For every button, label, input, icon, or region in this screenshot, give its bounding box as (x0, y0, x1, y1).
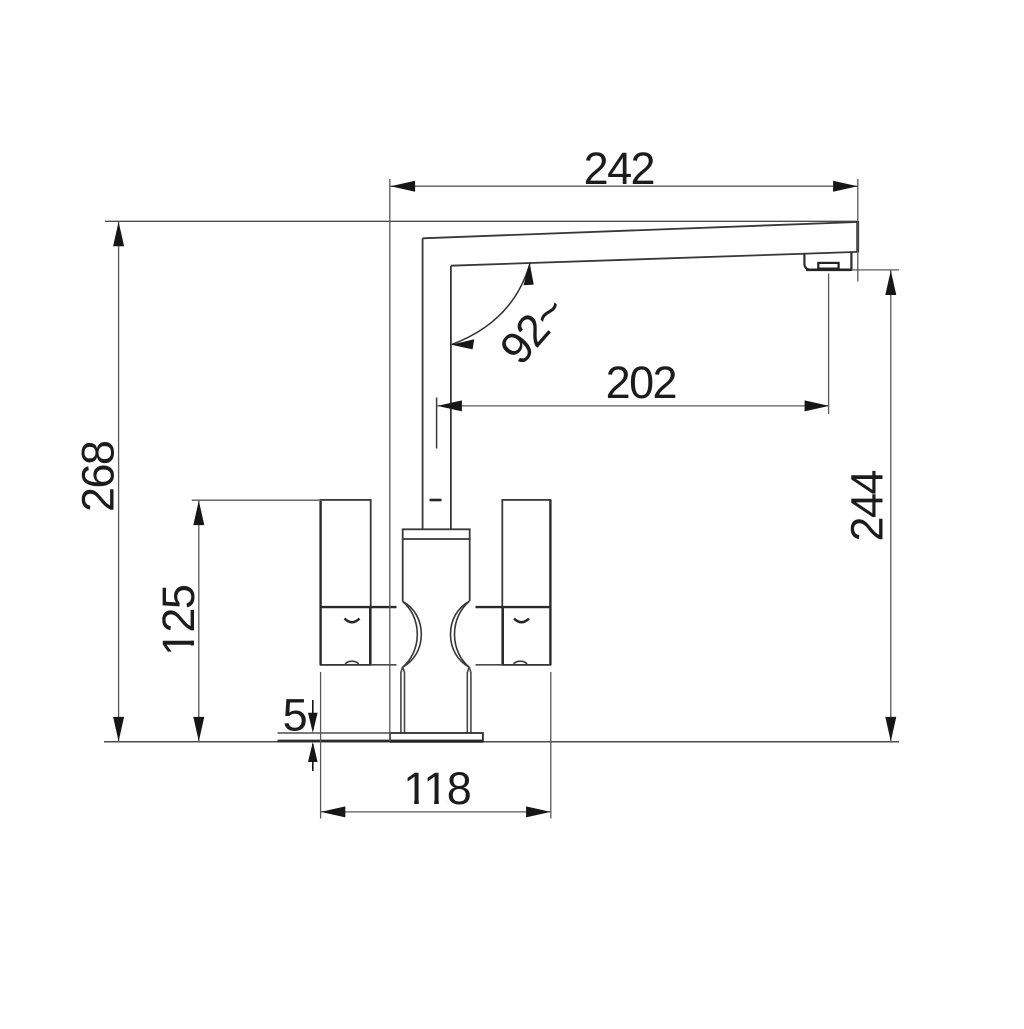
svg-text:118: 118 (403, 763, 471, 814)
svg-text:244: 244 (842, 471, 893, 542)
svg-text:268: 268 (72, 441, 123, 512)
svg-text:125: 125 (153, 585, 204, 656)
svg-text:5: 5 (283, 689, 307, 740)
svg-text:242: 242 (584, 143, 654, 194)
svg-text:202: 202 (606, 357, 676, 408)
